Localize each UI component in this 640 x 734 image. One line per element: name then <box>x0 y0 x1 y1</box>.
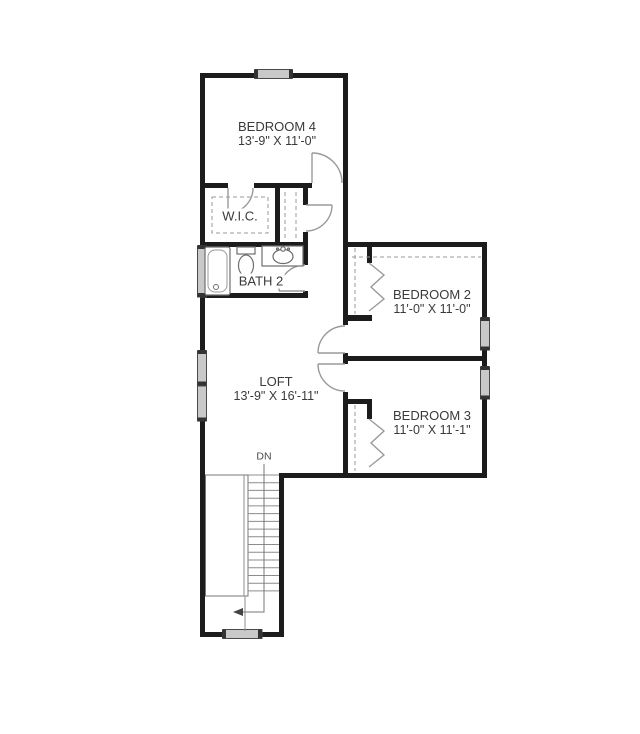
wall <box>348 399 372 404</box>
sink-vanity-icon <box>262 246 303 266</box>
stair-down-arrow-icon <box>233 608 243 616</box>
wall <box>348 315 372 321</box>
wall <box>275 188 280 242</box>
room-name: W.I.C. <box>222 209 257 224</box>
bedroom2-closet-bifold-door <box>369 263 384 311</box>
wall <box>303 183 308 205</box>
walls-layer <box>200 73 487 637</box>
bedroom3-closet-bifold-door <box>369 419 384 467</box>
wall <box>367 404 372 419</box>
room-dimensions: 13'-9" X 11'-0" <box>238 134 316 149</box>
stairwell-void <box>206 475 249 596</box>
wall <box>343 73 348 325</box>
wall <box>303 232 308 265</box>
loft-label: LOFT 13'-9" X 16'-11" <box>233 374 320 404</box>
toilet-icon <box>237 247 255 276</box>
window-bedroom4-top <box>254 70 293 79</box>
room-dimensions: 11'-0" X 11'-0" <box>393 302 471 317</box>
wall <box>279 473 487 478</box>
bedroom2-label: BEDROOM 2 11'-0" X 11'-0" <box>392 287 472 317</box>
bathtub-icon <box>205 247 230 295</box>
room-name: BATH 2 <box>239 274 284 289</box>
window-loft-left-upper <box>198 350 207 386</box>
bedroom3-label: BEDROOM 3 11'-0" X 11'-1" <box>392 408 472 438</box>
bedroom4-door <box>312 153 342 183</box>
wall <box>348 356 487 361</box>
wall <box>343 392 348 478</box>
window-bedroom2-right <box>481 317 490 351</box>
room-name: BEDROOM 4 <box>238 119 316 134</box>
floor-plan: BEDROOM 4 13'-9" X 11'-0" W.I.C. BATH 2 … <box>0 0 640 734</box>
stairs-group <box>206 464 280 631</box>
wall <box>200 183 228 188</box>
bath2-label: BATH 2 <box>238 274 285 289</box>
room-dimensions: 11'-0" X 11'-1" <box>393 423 471 438</box>
wall <box>279 473 284 637</box>
room-dimensions: 13'-9" X 16'-11" <box>234 389 319 404</box>
bedroom3-door <box>318 364 345 391</box>
window-bedroom3-right <box>481 366 490 400</box>
room-name: LOFT <box>234 374 319 389</box>
floor-plan-drawing <box>0 0 640 734</box>
wall <box>343 353 348 364</box>
wall <box>343 242 487 247</box>
window-stairs-bottom <box>222 630 262 639</box>
room-name: BEDROOM 2 <box>393 287 471 302</box>
window-loft-left-lower <box>198 386 207 422</box>
room-name: BEDROOM 3 <box>393 408 471 423</box>
stairs-down-label: DN <box>255 450 272 465</box>
bedroom4-label: BEDROOM 4 13'-9" X 11'-0" <box>237 119 317 149</box>
wall <box>367 247 372 263</box>
stair-down-path <box>238 464 264 612</box>
wic-label: W.I.C. <box>221 209 258 224</box>
bedroom2-door <box>318 326 345 353</box>
linen-closet-door <box>306 205 332 231</box>
